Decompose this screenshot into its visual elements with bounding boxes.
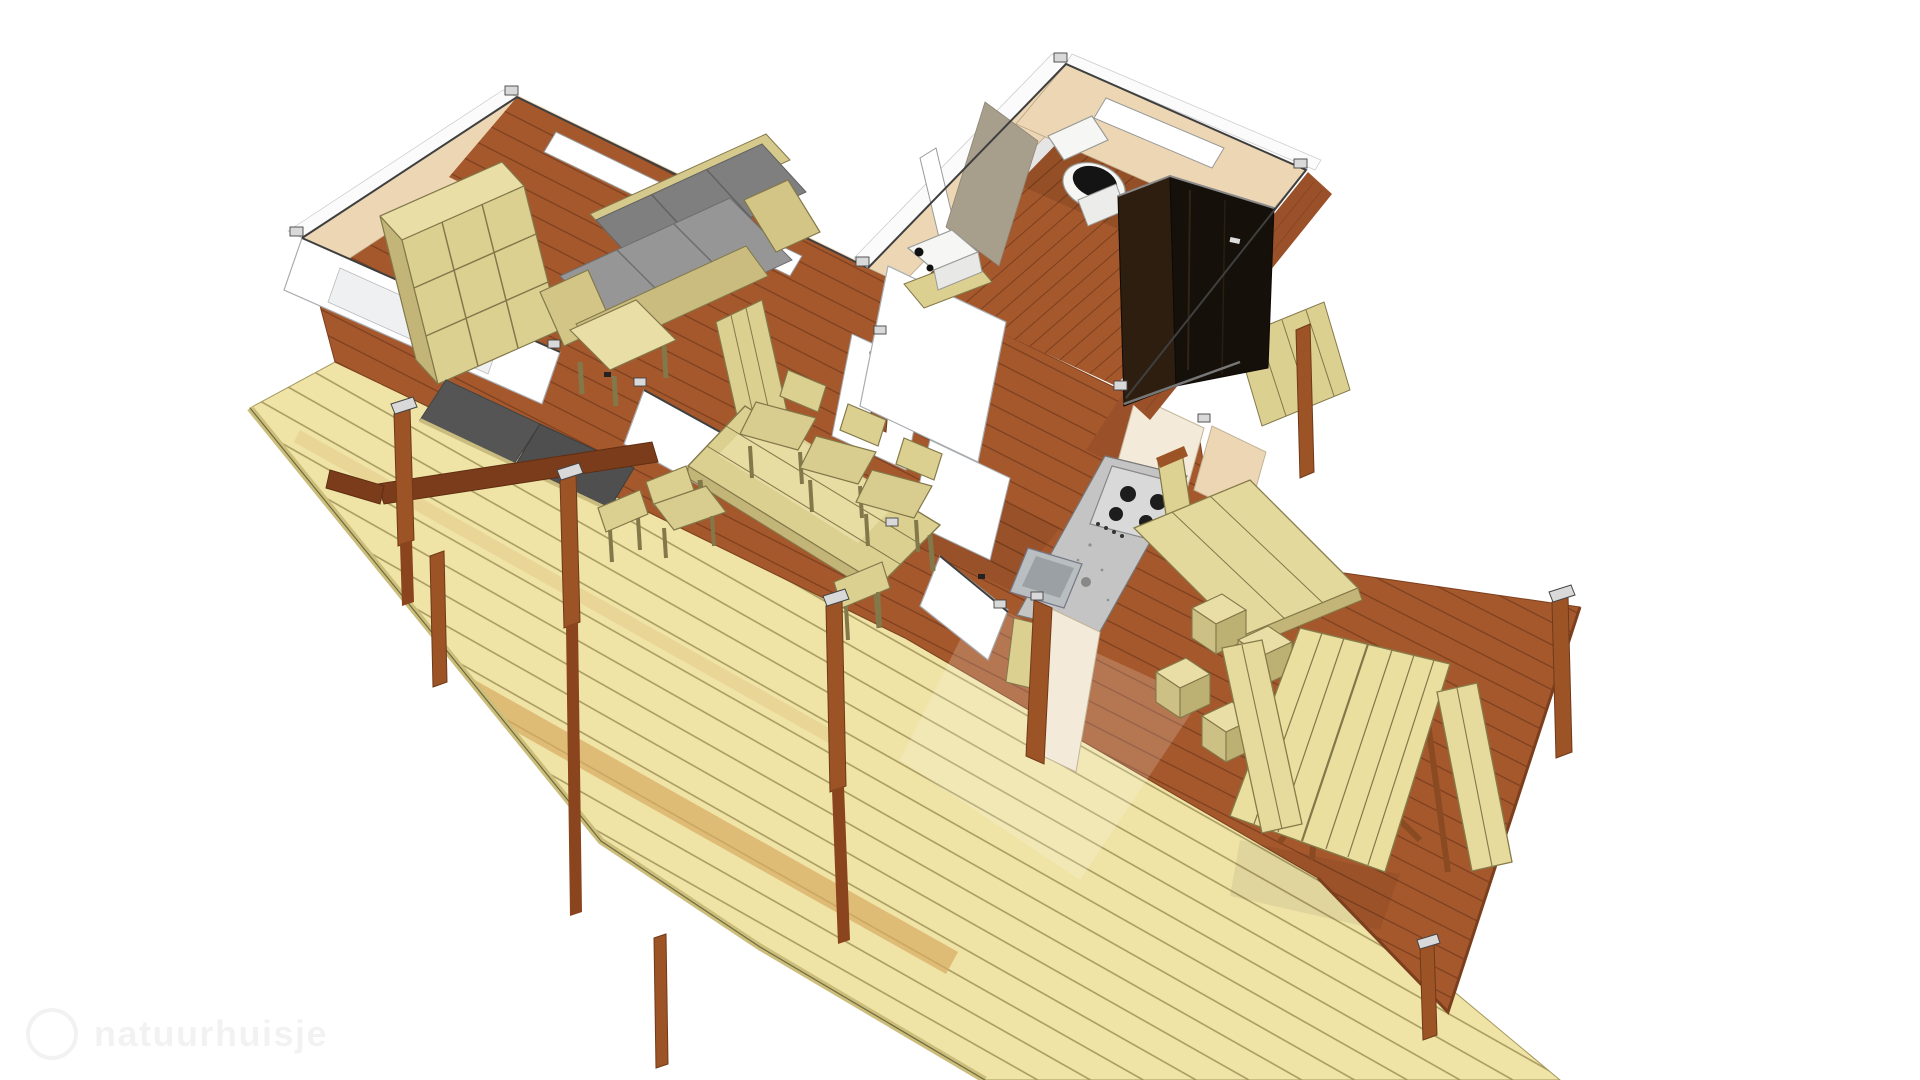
basin-drain xyxy=(927,265,934,272)
watermark-logo-icon xyxy=(26,1008,78,1060)
lodge-3d-render xyxy=(0,0,1920,1080)
canvas: natuurhuisje xyxy=(0,0,1920,1080)
watermark: natuurhuisje xyxy=(26,1008,328,1060)
watermark-text: natuurhuisje xyxy=(94,1013,328,1055)
basin-tap xyxy=(915,248,924,257)
shower xyxy=(1118,176,1274,406)
support-post xyxy=(430,551,447,687)
sink-faucet xyxy=(1081,577,1091,587)
hob-burner xyxy=(1120,486,1136,502)
support-post xyxy=(654,934,668,1068)
hob-burner xyxy=(1109,507,1123,521)
